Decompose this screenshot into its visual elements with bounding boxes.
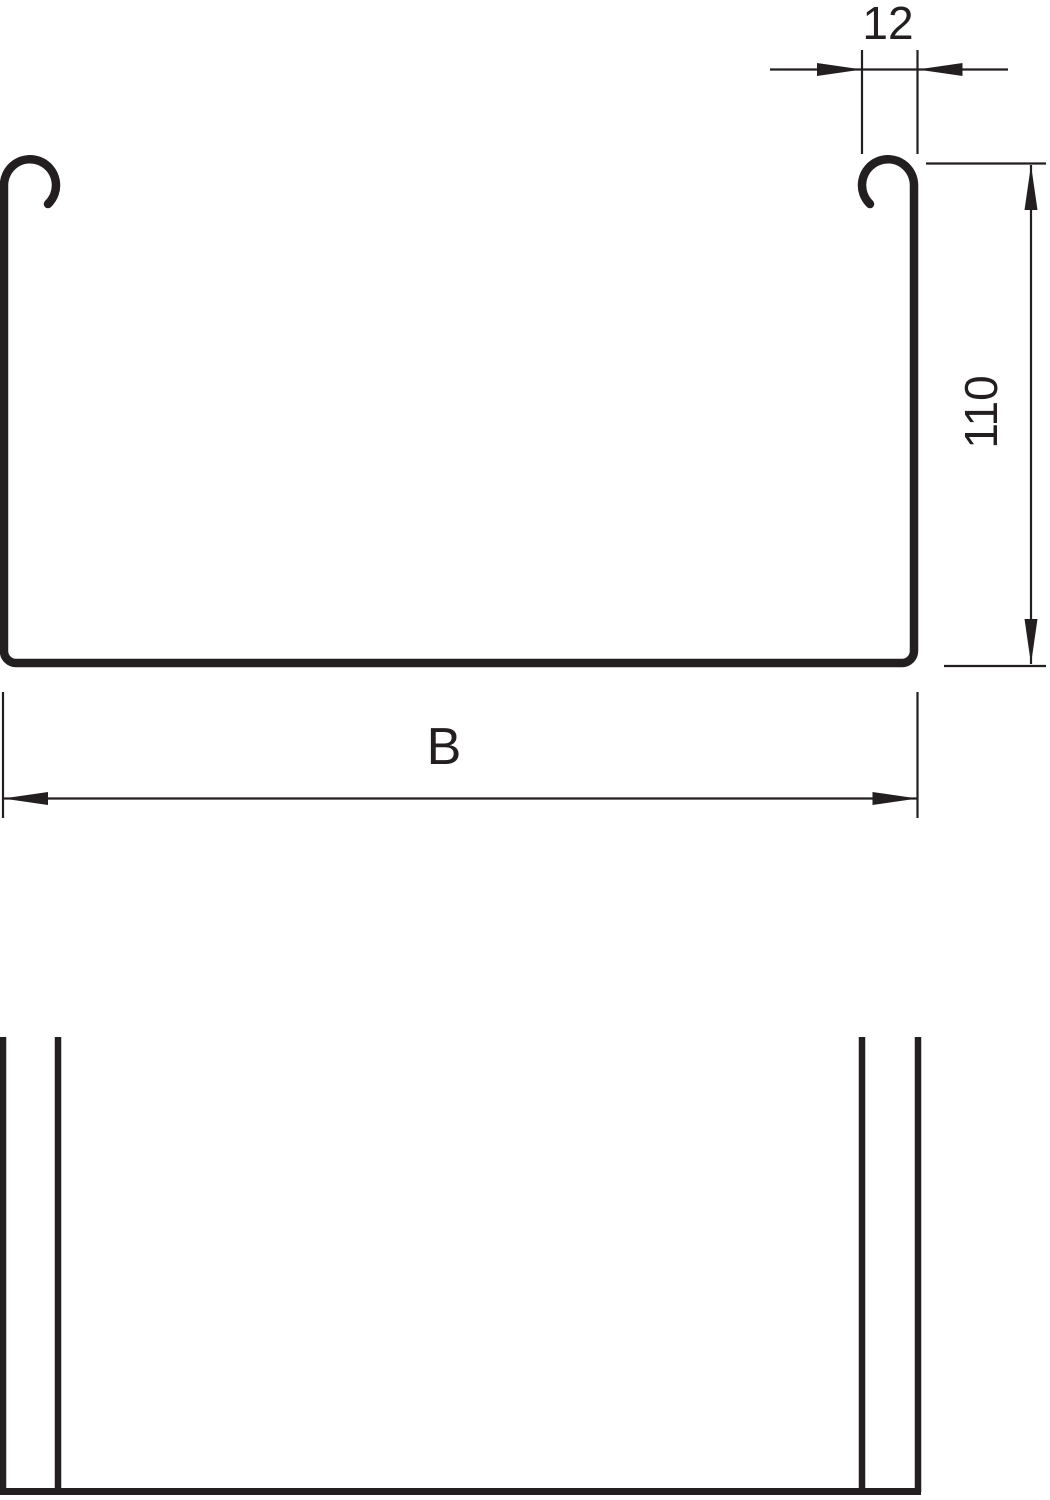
cross-section-view	[4, 159, 914, 663]
arrowhead-left-icon	[918, 63, 963, 76]
dimension-label-overall-width: B	[427, 718, 462, 776]
profile-outline	[4, 159, 914, 663]
dimension-label-side-height: 110	[955, 375, 1007, 448]
dimension-label-rim-width: 12	[862, 0, 913, 49]
arrowhead-up-icon	[1025, 165, 1038, 210]
technical-drawing: 12 110 B	[0, 0, 1050, 1500]
side-elevation-view	[0, 1037, 921, 1492]
drawing-canvas: 12 110 B	[0, 0, 1050, 1500]
arrowhead-left-icon	[3, 792, 48, 805]
arrowhead-down-icon	[1025, 619, 1038, 664]
arrowhead-right-icon	[873, 792, 918, 805]
dimension-side-height: 110	[926, 164, 1046, 667]
dimension-overall-width: B	[3, 692, 918, 818]
arrowhead-right-icon	[817, 63, 862, 76]
dimension-rim-width: 12	[770, 0, 1008, 154]
